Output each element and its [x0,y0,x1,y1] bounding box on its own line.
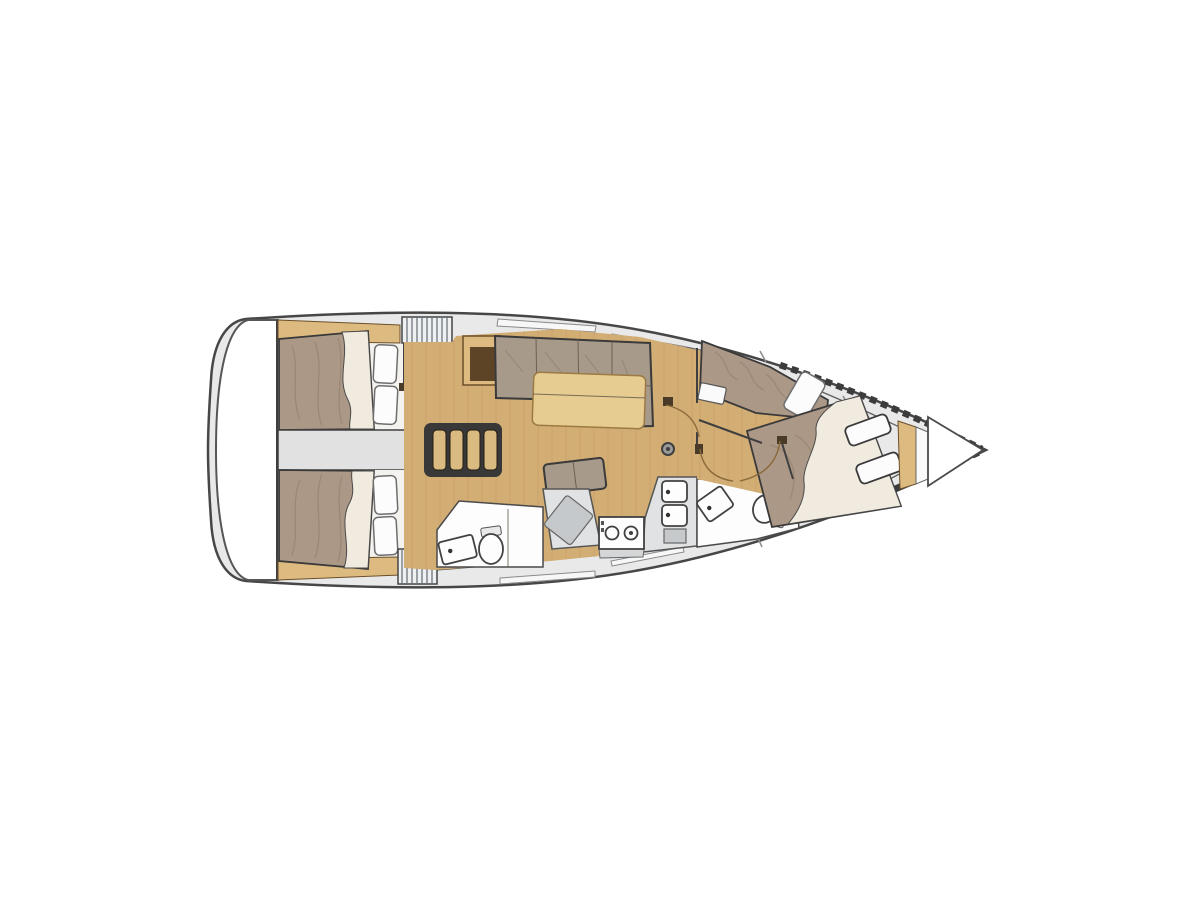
double-sink [662,481,687,543]
pillow [373,385,398,424]
companionway-steps [424,423,502,477]
yacht-floorplan [0,0,1200,900]
step-tread [484,430,497,470]
aft-berth-port [279,331,398,430]
pillow [373,475,398,514]
stove-knob [601,521,604,525]
door-leaf [695,444,703,454]
saloon-table [532,372,646,429]
table-top [532,372,646,429]
burner-center [629,531,633,535]
step-tread [450,430,463,470]
stern-swim-platform [216,320,278,580]
stove-knob [601,528,604,532]
step-tread [467,430,480,470]
pillow [373,344,398,383]
counter-front [599,549,644,558]
step-tread [433,430,446,470]
sink-basin [662,481,687,502]
bow-step [916,427,928,484]
hatch-slats [407,318,447,342]
pillow [373,516,398,555]
companionway-hatch-top [402,317,452,343]
faucet [666,490,670,494]
aft-berth-starboard [279,470,398,569]
anchor-locker-shape [928,417,983,486]
anchor-locker [928,417,983,486]
mast-step [662,443,674,455]
transom-shape [216,320,278,580]
cabinet-opening [470,347,495,381]
bow-shelf [898,421,916,489]
toilet-bowl [479,534,503,564]
stove [599,517,644,549]
toilet [479,526,503,564]
door-leaf [777,436,787,444]
sink-cabinet [664,529,686,543]
aft-head [437,501,543,567]
yacht-floorplan-canvas [0,0,1200,900]
faucet [666,513,670,517]
sink-basin [662,505,687,526]
door-leaf [663,397,673,406]
